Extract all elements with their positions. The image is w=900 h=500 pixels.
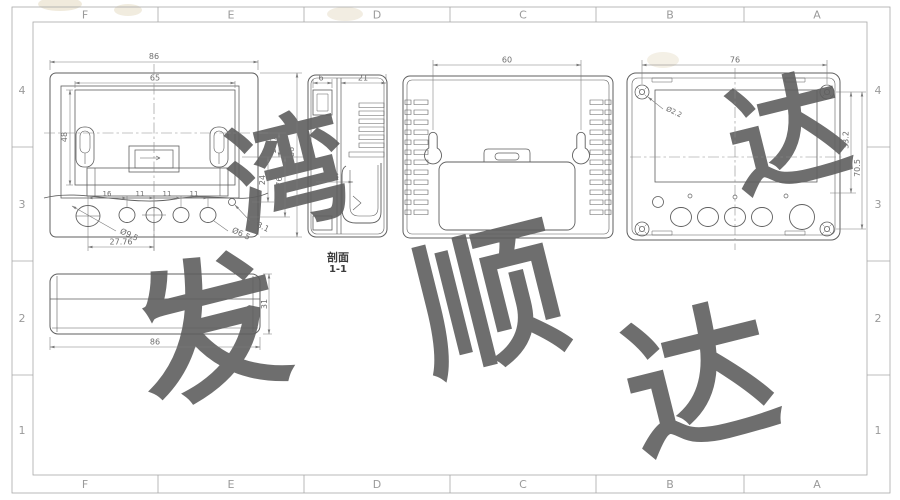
scan-smudge [38, 0, 82, 11]
dim-text: Ø2.2 [665, 105, 683, 119]
grid-label-right: 1 [875, 424, 882, 437]
back-vents-left-outer [405, 100, 411, 215]
grid-label-left: 1 [19, 424, 26, 437]
back-vents-right-outer [605, 100, 611, 215]
grid-label-right: 4 [875, 84, 882, 97]
front-hole [173, 208, 189, 223]
dim-text: 11 [136, 190, 145, 198]
section-title-number: 1-1 [329, 264, 347, 275]
dim-text: 24 [258, 175, 267, 185]
dim-text: 10.7 [269, 136, 278, 154]
back-dimensions [433, 60, 581, 130]
dim-text: 31 [260, 299, 269, 309]
front-button-arrow [140, 156, 160, 160]
grid-label-bottom: D [373, 478, 381, 491]
grid-label-left: 3 [19, 198, 26, 211]
grid-label-top: D [373, 9, 381, 22]
dim-text: 86 [149, 52, 159, 61]
back-vents-left-inner [414, 100, 428, 215]
scan-smudge [114, 4, 142, 16]
dim-text: 21 [358, 74, 368, 83]
left-column-dividers [12, 147, 33, 375]
dim-text: 86 [287, 147, 296, 157]
grid-label-top: F [82, 9, 88, 22]
grid-label-bottom: B [666, 478, 674, 491]
dim-text: 11 [190, 190, 199, 198]
dim-text: 11.3 [321, 172, 339, 181]
inside-hole-oval [698, 208, 719, 227]
grid-label-bottom: C [519, 478, 527, 491]
grid-label-right: 3 [875, 198, 882, 211]
section-title: 剖面 [327, 250, 349, 264]
drawing-sheet: 发 顺 达 湾 达 F E D C B A F E D C B A 4 3 2 … [0, 0, 900, 500]
dim-text: 86 [150, 338, 160, 347]
back-vents-right-inner [590, 100, 603, 215]
front-window-inner [75, 90, 235, 185]
inside-hole-dot [688, 194, 692, 198]
cad-drawing-svg: 发 顺 达 湾 达 F E D C B A F E D C B A 4 3 2 … [0, 0, 900, 500]
inside-hole-oval [671, 208, 692, 227]
grid-label-right: 2 [875, 312, 882, 325]
inside-hole-large [790, 205, 815, 230]
top-band-dividers [158, 7, 744, 22]
right-column-dividers [867, 147, 890, 375]
grid-label-left: 4 [19, 84, 26, 97]
dim-text: 6 [318, 74, 323, 83]
back-latch-slot [495, 153, 519, 160]
inside-hole-small [653, 197, 664, 208]
dim-text: 65 [150, 74, 160, 83]
dim-text: 11 [163, 190, 172, 198]
scan-smudge [327, 7, 363, 21]
dim-text: 31.76 [275, 177, 284, 200]
front-window-outer [61, 86, 239, 198]
front-hook-left-inner [80, 131, 90, 153]
watermark-char: 达 [607, 280, 795, 485]
dim-text: 33.2 [842, 131, 851, 149]
dim-text: 76 [730, 56, 740, 65]
watermark-char: 顺 [397, 200, 585, 405]
front-hole [200, 208, 216, 223]
dim-text: 70.5 [853, 159, 862, 177]
grid-label-bottom: A [813, 478, 821, 491]
scan-smudge [647, 52, 679, 68]
grid-label-top: C [519, 9, 527, 22]
front-hole [119, 208, 135, 223]
back-keyhole-right [573, 132, 590, 164]
grid-label-bottom: E [228, 478, 235, 491]
watermark-char: 发 [117, 230, 305, 435]
grid-label-top: A [813, 9, 821, 22]
grid-label-top: B [666, 9, 674, 22]
dim-text: 48 [60, 132, 69, 142]
grid-label-top: E [228, 9, 235, 22]
grid-label-left: 2 [19, 312, 26, 325]
back-keyhole-left [425, 132, 442, 164]
dim-text: 60 [502, 56, 512, 65]
hole-cross-marks [76, 205, 166, 226]
grid-label-bottom: F [82, 478, 88, 491]
section-vent-fins [349, 103, 384, 157]
dim-text: 16 [103, 190, 112, 198]
